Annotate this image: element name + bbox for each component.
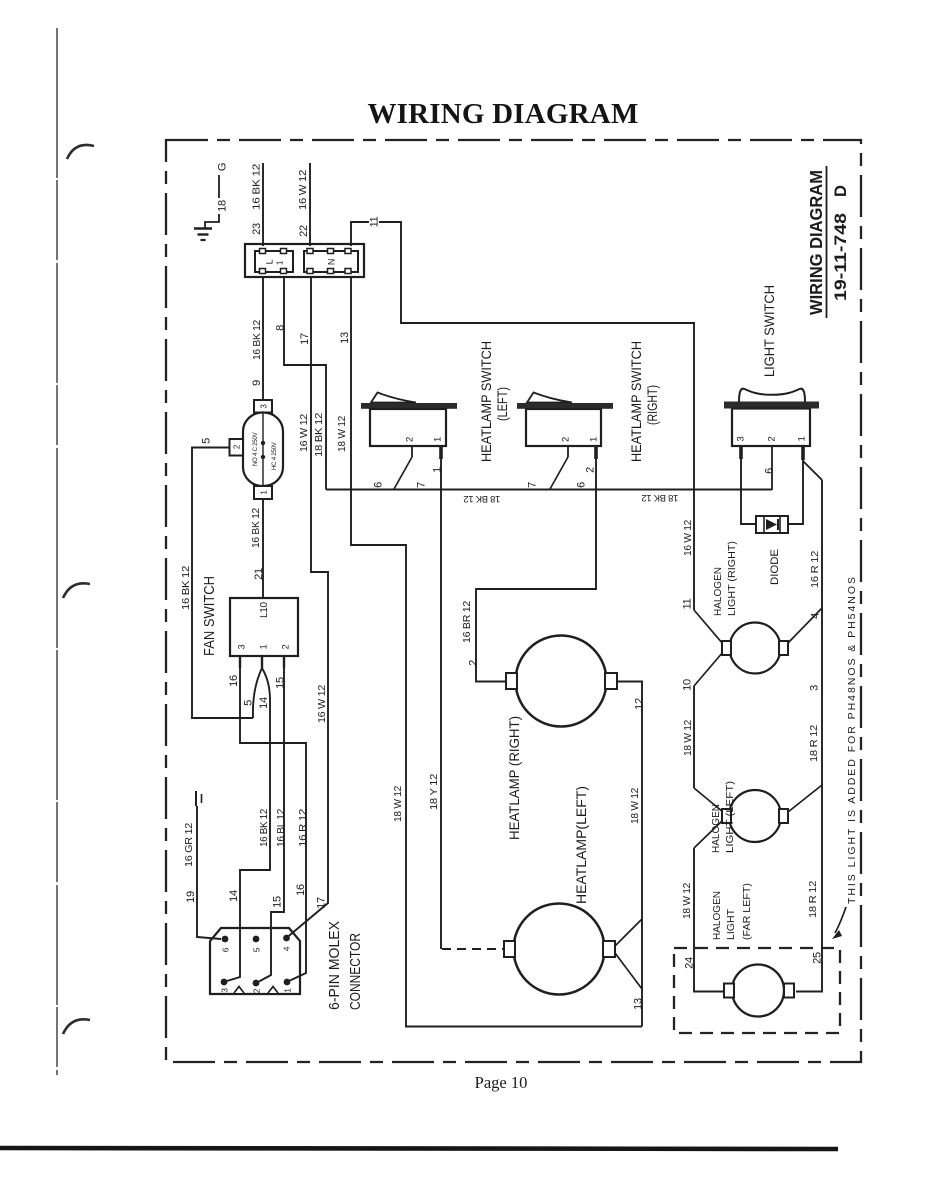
- svg-text:G: G: [217, 163, 229, 171]
- svg-text:(LEFT): (LEFT): [494, 387, 510, 421]
- svg-text:2: 2: [281, 644, 291, 649]
- svg-text:5: 5: [201, 438, 213, 444]
- svg-text:13: 13: [339, 332, 351, 344]
- svg-text:6: 6: [764, 468, 776, 474]
- svg-text:LIGHT: LIGHT: [725, 908, 737, 940]
- svg-text:11: 11: [682, 598, 694, 609]
- svg-text:WIRING DIAGRAM: WIRING DIAGRAM: [806, 170, 826, 315]
- svg-text:L10: L10: [259, 601, 270, 618]
- svg-text:18 BK 12: 18 BK 12: [464, 493, 501, 504]
- svg-text:5: 5: [243, 700, 255, 706]
- svg-text:19-11-748: 19-11-748: [832, 213, 850, 301]
- svg-text:THIS LIGHT IS ADDED FOR PH48NO: THIS LIGHT IS ADDED FOR PH48NOS & PH54NO…: [846, 577, 858, 904]
- svg-text:11: 11: [369, 216, 381, 227]
- svg-text:16 W 12: 16 W 12: [297, 170, 309, 210]
- svg-text:L: L: [265, 259, 275, 264]
- svg-text:2: 2: [252, 988, 262, 993]
- svg-text:HALOGEN: HALOGEN: [710, 804, 722, 853]
- svg-text:18 W 12: 18 W 12: [336, 416, 348, 452]
- svg-text:12: 12: [634, 698, 646, 710]
- svg-text:6: 6: [576, 482, 588, 488]
- svg-text:18 Y 12: 18 Y 12: [428, 774, 440, 810]
- svg-text:LIGHT (RIGHT): LIGHT (RIGHT): [726, 541, 738, 616]
- svg-text:16 BK 12: 16 BK 12: [251, 320, 263, 360]
- svg-text:16 W 12: 16 W 12: [316, 685, 328, 723]
- svg-text:19: 19: [185, 891, 197, 903]
- svg-text:1: 1: [283, 988, 293, 993]
- svg-text:LIGHT (LEFT): LIGHT (LEFT): [724, 781, 736, 853]
- svg-text:18: 18: [217, 200, 229, 212]
- svg-text:1: 1: [589, 437, 600, 442]
- svg-text:13: 13: [633, 998, 645, 1010]
- svg-text:1: 1: [432, 467, 444, 473]
- svg-text:6-PIN MOLEX: 6-PIN MOLEX: [327, 921, 343, 1010]
- svg-text:HEATLAMP SWITCH: HEATLAMP SWITCH: [628, 341, 644, 462]
- svg-text:1: 1: [259, 644, 269, 649]
- svg-text:25: 25: [812, 952, 824, 964]
- svg-text:(FAR LEFT): (FAR LEFT): [741, 883, 753, 940]
- svg-text:16: 16: [228, 675, 240, 687]
- svg-text:23: 23: [251, 223, 263, 235]
- svg-text:HALOGEN: HALOGEN: [712, 567, 724, 616]
- svg-text:16 BK 12: 16 BK 12: [180, 566, 192, 610]
- svg-text:18 W 12: 18 W 12: [392, 786, 404, 822]
- svg-text:2: 2: [468, 660, 480, 666]
- svg-text:16 BR 12: 16 BR 12: [461, 601, 473, 643]
- svg-text:15: 15: [272, 896, 284, 908]
- svg-text:17: 17: [299, 333, 311, 345]
- svg-text:16 BL 12: 16 BL 12: [275, 809, 287, 847]
- svg-text:8: 8: [275, 325, 287, 331]
- svg-text:18 R 12: 18 R 12: [808, 725, 820, 762]
- svg-text:D: D: [832, 185, 850, 197]
- svg-text:3: 3: [736, 436, 747, 441]
- svg-text:24: 24: [684, 957, 696, 969]
- svg-text:5: 5: [252, 947, 262, 952]
- svg-text:16 BK 12: 16 BK 12: [251, 163, 263, 210]
- svg-text:HEATLAMP SWITCH: HEATLAMP SWITCH: [478, 341, 494, 462]
- svg-text:4: 4: [810, 613, 822, 619]
- svg-text:22: 22: [298, 225, 310, 237]
- svg-text:HEATLAMP(LEFT): HEATLAMP(LEFT): [573, 786, 589, 904]
- svg-text:7: 7: [527, 482, 539, 488]
- svg-text:HEATLAMP (RIGHT): HEATLAMP (RIGHT): [506, 716, 522, 840]
- svg-text:6: 6: [373, 482, 385, 488]
- svg-text:18 W 12: 18 W 12: [682, 720, 694, 756]
- svg-text:17: 17: [316, 897, 328, 909]
- svg-text:3: 3: [809, 685, 821, 691]
- svg-text:LIGHT SWITCH: LIGHT SWITCH: [761, 285, 777, 377]
- svg-text:WIRING DIAGRAM: WIRING DIAGRAM: [367, 98, 638, 130]
- svg-text:FAN SWITCH: FAN SWITCH: [201, 576, 218, 656]
- svg-text:DIODE: DIODE: [769, 549, 781, 585]
- svg-text:NO 4 C 250V: NO 4 C 250V: [253, 432, 259, 466]
- svg-text:2: 2: [561, 437, 572, 442]
- svg-text:10: 10: [682, 679, 694, 691]
- svg-text:1: 1: [797, 436, 808, 441]
- svg-text:9: 9: [251, 380, 263, 386]
- svg-text:14: 14: [228, 890, 240, 902]
- svg-text:N: N: [327, 259, 337, 265]
- svg-text:16 BK 12: 16 BK 12: [250, 508, 262, 548]
- svg-text:16 BK 12: 16 BK 12: [258, 809, 270, 847]
- svg-text:4: 4: [282, 946, 292, 951]
- svg-text:1: 1: [433, 437, 444, 442]
- svg-text:6: 6: [221, 947, 231, 952]
- svg-text:HC 4 250V: HC 4 250V: [272, 442, 278, 470]
- svg-text:14: 14: [258, 697, 270, 709]
- svg-text:3: 3: [220, 988, 230, 993]
- svg-text:HALOGEN: HALOGEN: [711, 891, 723, 940]
- svg-text:16 GR 12: 16 GR 12: [183, 823, 195, 867]
- svg-text:15: 15: [275, 677, 287, 689]
- svg-text:18 BK 12: 18 BK 12: [313, 413, 325, 457]
- svg-text:18 BK 12: 18 BK 12: [642, 492, 679, 503]
- svg-text:16 R 12: 16 R 12: [297, 809, 309, 847]
- svg-text:21: 21: [253, 568, 265, 580]
- svg-text:16 W 12: 16 W 12: [682, 520, 694, 556]
- svg-text:18 R 12: 18 R 12: [807, 881, 819, 918]
- svg-text:(RIGHT): (RIGHT): [644, 385, 660, 425]
- svg-text:2: 2: [767, 436, 778, 441]
- svg-text:2: 2: [405, 437, 416, 442]
- svg-text:3: 3: [237, 644, 247, 649]
- svg-text:16: 16: [295, 884, 307, 896]
- svg-text:Page 10: Page 10: [475, 1073, 528, 1092]
- svg-text:2: 2: [585, 467, 597, 473]
- svg-text:18 W 12: 18 W 12: [681, 883, 693, 919]
- svg-text:7: 7: [416, 482, 428, 488]
- svg-text:18 W 12: 18 W 12: [629, 788, 641, 824]
- svg-text:CONNECTOR: CONNECTOR: [348, 933, 364, 1010]
- svg-text:16 W 12: 16 W 12: [298, 414, 310, 452]
- svg-text:16 R 12: 16 R 12: [809, 551, 821, 588]
